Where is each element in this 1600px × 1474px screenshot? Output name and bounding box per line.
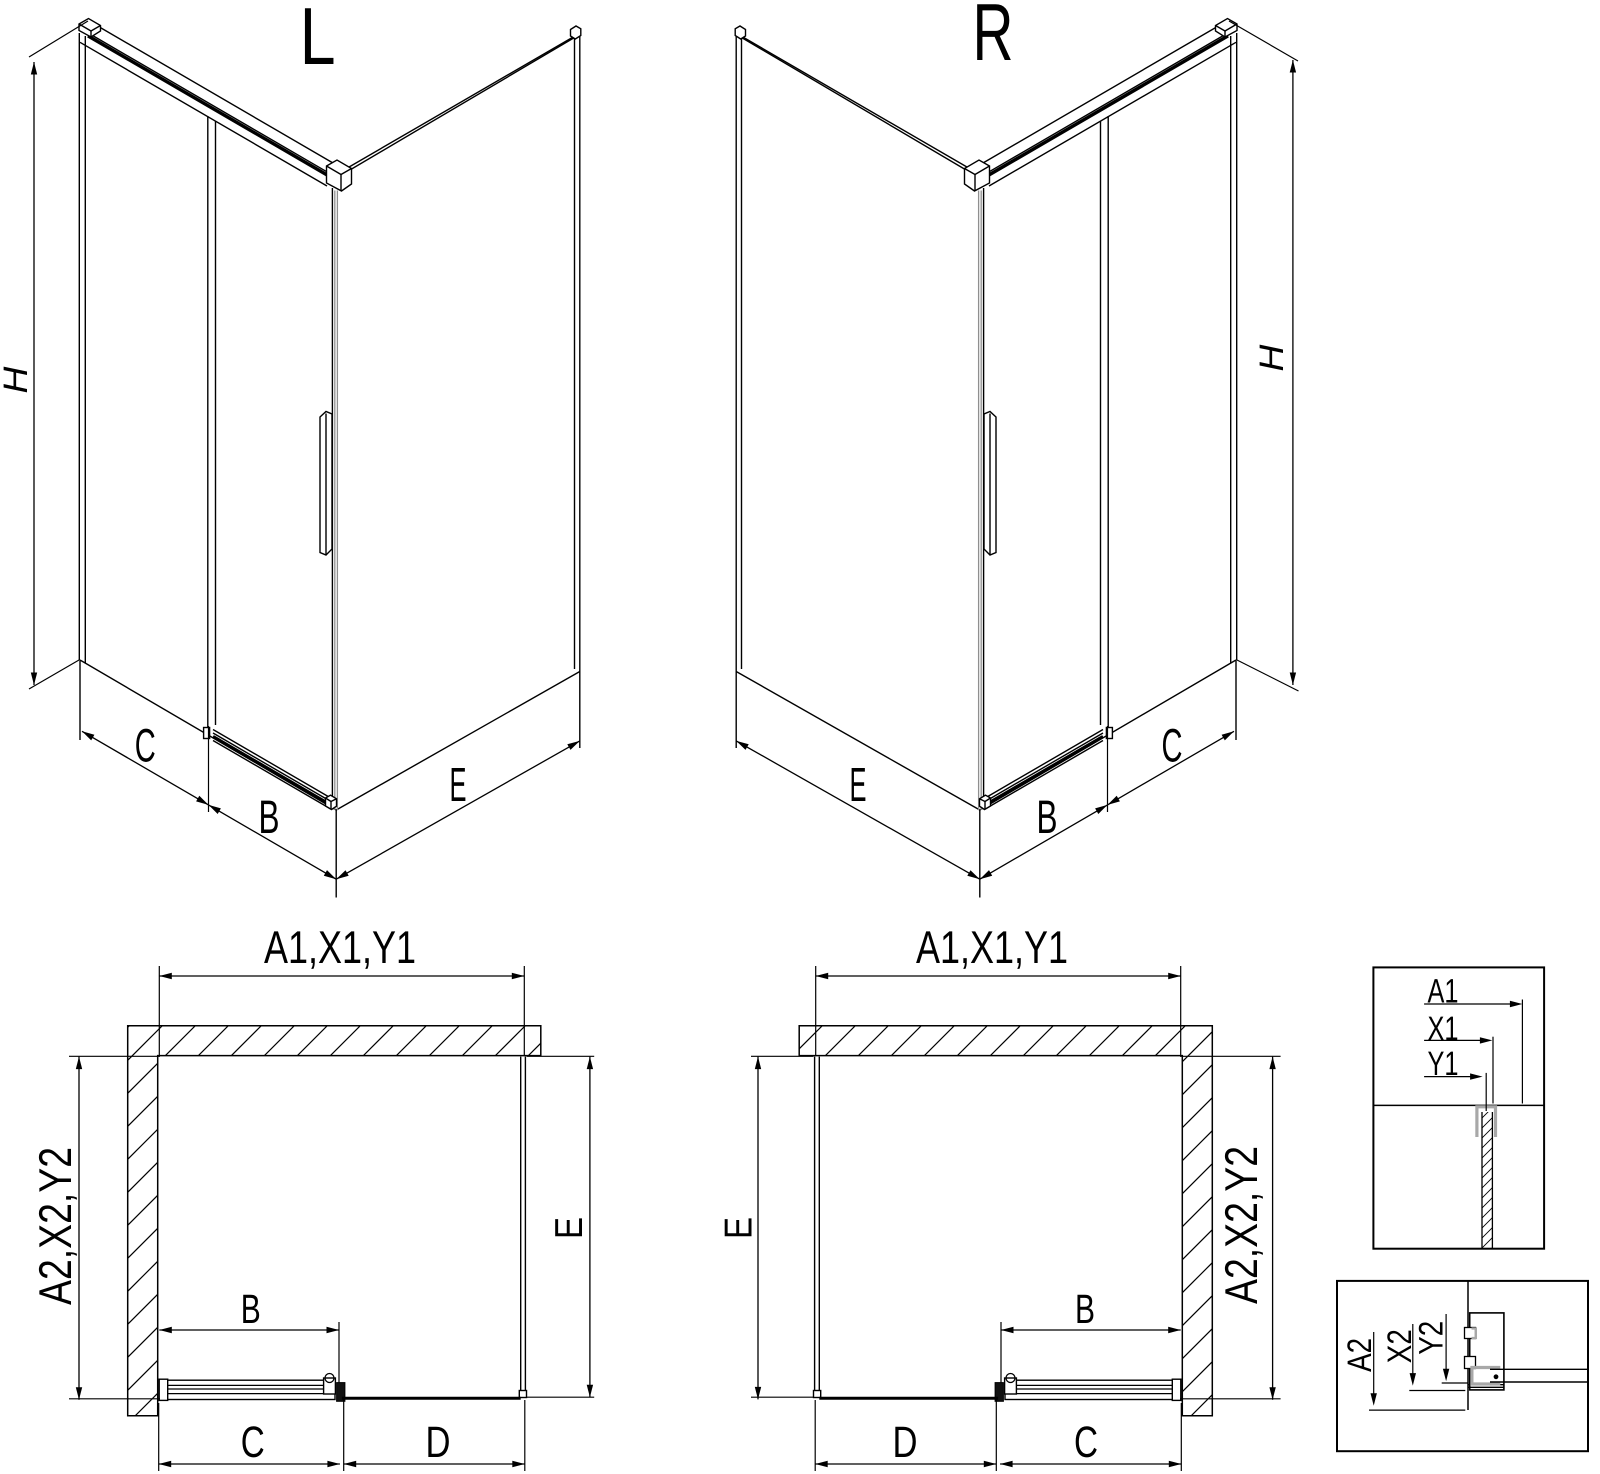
- svg-text:E: E: [850, 759, 867, 812]
- svg-text:B: B: [259, 790, 280, 843]
- svg-text:D: D: [893, 1418, 918, 1467]
- svg-text:A1,X1,Y1: A1,X1,Y1: [916, 921, 1068, 973]
- svg-text:B: B: [1037, 790, 1058, 843]
- svg-text:D: D: [426, 1418, 451, 1467]
- svg-text:A1: A1: [1428, 973, 1459, 1011]
- svg-text:A2,X2,Y2: A2,X2,Y2: [1215, 1146, 1267, 1304]
- svg-text:L: L: [300, 0, 336, 82]
- svg-text:E: E: [548, 1217, 591, 1239]
- svg-text:A2: A2: [1341, 1338, 1379, 1372]
- svg-text:A1,X1,Y1: A1,X1,Y1: [264, 921, 416, 973]
- svg-text:B: B: [241, 1286, 261, 1332]
- svg-text:C: C: [135, 718, 156, 771]
- svg-text:E: E: [718, 1217, 761, 1239]
- svg-text:X1: X1: [1428, 1010, 1459, 1048]
- svg-text:C: C: [241, 1418, 265, 1467]
- svg-text:E: E: [450, 759, 467, 812]
- svg-text:C: C: [1074, 1418, 1098, 1467]
- svg-text:Y2: Y2: [1413, 1321, 1451, 1355]
- svg-text:A2,X2,Y2: A2,X2,Y2: [29, 1147, 81, 1305]
- svg-text:Y1: Y1: [1428, 1045, 1459, 1083]
- svg-text:B: B: [1075, 1286, 1095, 1332]
- svg-text:R: R: [973, 0, 1014, 78]
- svg-text:C: C: [1162, 718, 1183, 771]
